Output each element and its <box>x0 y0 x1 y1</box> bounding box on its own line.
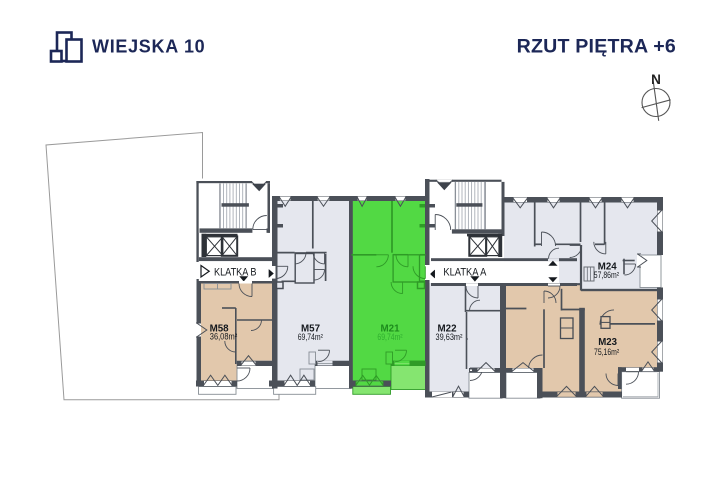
svg-text:N: N <box>651 72 661 87</box>
svg-text:KLATKA A: KLATKA A <box>443 266 486 278</box>
svg-text:WIEJSKA 10: WIEJSKA 10 <box>92 36 205 56</box>
svg-text:75,16m²: 75,16m² <box>594 347 619 357</box>
svg-text:36,08m²: 36,08m² <box>210 332 237 342</box>
svg-text:39,63m²: 39,63m² <box>436 332 463 342</box>
svg-text:RZUT PIĘTRA +6: RZUT PIĘTRA +6 <box>517 36 676 58</box>
svg-text:69,74m²: 69,74m² <box>377 332 402 342</box>
svg-text:69,74m²: 69,74m² <box>298 332 323 342</box>
svg-text:57,86m²: 57,86m² <box>594 270 619 280</box>
svg-text:KLATKA B: KLATKA B <box>214 266 257 278</box>
